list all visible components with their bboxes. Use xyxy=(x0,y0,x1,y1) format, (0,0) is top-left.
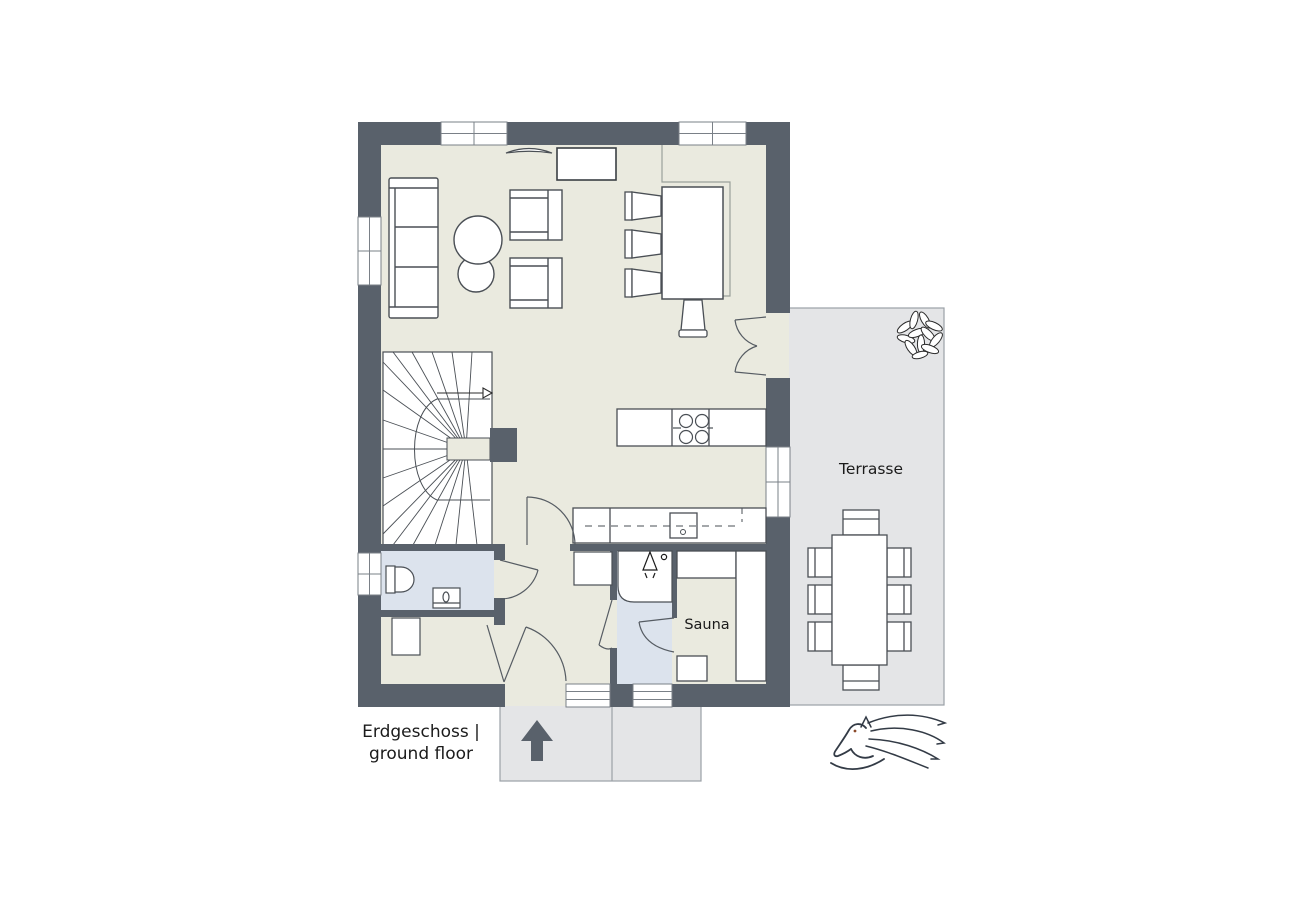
wall-stub-stairs xyxy=(490,428,517,462)
horse-logo xyxy=(831,715,945,769)
horse-eye xyxy=(854,730,857,733)
entrance-sidelight xyxy=(633,684,672,707)
sauna-label: Sauna xyxy=(684,617,729,633)
sauna-stove xyxy=(677,656,707,681)
terrace-chair xyxy=(887,585,911,614)
floorplan-canvas: Terrasse xyxy=(0,0,1300,900)
dining-table xyxy=(662,187,723,299)
terrace-chair xyxy=(843,665,879,690)
porch-surface xyxy=(500,705,701,781)
entrance-sidelight xyxy=(566,684,610,707)
hall-cabinet xyxy=(574,552,612,585)
floorplan-drawing: Terrasse xyxy=(0,0,1300,900)
dining-chair xyxy=(679,300,707,337)
terrace-chair xyxy=(808,548,832,577)
wall-right-lower xyxy=(766,378,790,707)
wall-bottom-left xyxy=(358,684,505,707)
wall-under-stairs xyxy=(381,544,498,551)
terrace-door-opening xyxy=(766,313,789,378)
sofa xyxy=(389,178,438,318)
wall-post-bath-bottom xyxy=(494,598,505,625)
wall-left xyxy=(358,122,381,707)
window xyxy=(358,553,381,595)
dining-chair xyxy=(625,230,661,258)
terrace-chair xyxy=(887,548,911,577)
armchair xyxy=(510,190,562,240)
shower-tray xyxy=(618,551,672,602)
staircase xyxy=(383,352,492,545)
terrace-chair xyxy=(887,622,911,651)
wall-right-upper xyxy=(766,122,790,313)
wall-bath-room-divider xyxy=(381,610,494,617)
floor-title: Erdgeschoss | ground floor xyxy=(362,722,480,764)
armchair xyxy=(510,258,562,308)
terrace-chair xyxy=(808,622,832,651)
coffee-table xyxy=(454,216,502,264)
wall-post-bath-top xyxy=(494,544,505,560)
floor-label-line2: ground floor xyxy=(369,744,473,764)
window xyxy=(358,217,381,285)
window xyxy=(679,122,746,145)
dining-chair xyxy=(625,269,661,297)
window xyxy=(441,122,507,145)
sauna-bench xyxy=(677,551,736,578)
terrace-chair xyxy=(808,585,832,614)
wall-shower-left-lower xyxy=(610,648,617,684)
wall-kitchen xyxy=(570,544,766,551)
entrance-porch xyxy=(500,705,701,781)
window xyxy=(766,447,790,517)
wall-bottom-mid xyxy=(610,684,633,707)
stair-landing xyxy=(447,438,490,460)
terrace-label: Terrasse xyxy=(838,460,903,478)
wall-bottom-right xyxy=(672,684,790,707)
floor-label-line1: Erdgeschoss | xyxy=(362,722,480,742)
dining-chair xyxy=(625,192,661,220)
terrace-chair xyxy=(843,510,879,535)
bathroom-sink xyxy=(433,588,460,608)
terrace-table xyxy=(832,535,887,665)
terrace: Terrasse xyxy=(788,308,945,705)
wall-shower-sauna xyxy=(672,551,677,618)
sideboard xyxy=(557,148,616,180)
toilet xyxy=(386,566,414,593)
entrance-opening xyxy=(505,684,566,706)
utility-cabinet xyxy=(392,618,420,655)
sauna-bench xyxy=(736,551,766,681)
